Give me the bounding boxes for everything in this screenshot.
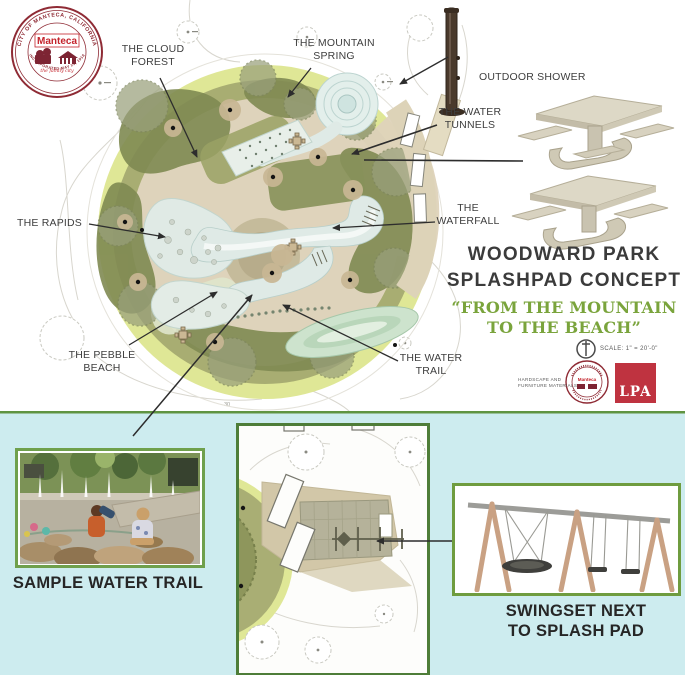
callout-water-tunnels: THE WATER TUNNELS [420,106,520,131]
seal-name: Manteca [37,36,77,47]
callout-cloud-forest-line1: THE CLOUD [103,43,203,56]
callout-waterfall: THE WATERFALL [418,202,518,227]
title-block: WOODWARD PARK SPLASHPAD CONCEPT “FROM TH… [440,242,685,338]
callout-rapids: THE RAPIDS [17,217,82,230]
seal-small-name: Manteca [578,377,597,382]
callout-mountain-spring-line2: SPRING [264,50,404,63]
materials-note: HARDSCAPE AND FURNITURE MATERIALS [518,377,577,389]
callout-rapids-line1: THE RAPIDS [17,217,82,230]
swingset-image [454,485,680,595]
sample-water-trail-caption: SAMPLE WATER TRAIL [10,573,206,593]
subtitle: “FROM THE MOUNTAIN TO THE BEACH” [440,298,685,338]
subtitle-line2: TO THE BEACH” [440,318,685,338]
callout-mountain-spring-line1: THE MOUNTAIN [264,37,404,50]
callout-waterfall-line2: WATERFALL [418,215,518,228]
scale-note: SCALE: 1" = 20'-0" [600,346,658,352]
picnic-table-images [512,96,674,249]
page-title-line1: WOODWARD PARK [440,242,685,268]
sample-photo [17,446,204,569]
seal-tagline: the family city [40,68,74,74]
swingset-caption-line2: TO SPLASH PAD [464,621,685,641]
callout-pebble-beach-line1: THE PEBBLE [52,349,152,362]
callout-water-tunnels-line1: THE WATER [420,106,520,119]
swingset-caption-line1: SWINGSET NEXT [464,601,685,621]
callout-pebble-beach: THE PEBBLE BEACH [52,349,152,374]
materials-note-line2: FURNITURE MATERIALS [518,383,577,389]
callout-outdoor-shower: OUTDOOR SHOWER [479,71,586,84]
concept-board: 30 [0,0,685,675]
lpa-logo-text: LPA [619,384,651,400]
callout-water-tunnels-line2: TUNNELS [420,119,520,132]
callout-outdoor-shower-line1: OUTDOOR SHOWER [479,71,586,84]
manteca-seal: CITY OF MANTECA, CALIFORNIA INCORPORATED… [12,7,102,97]
callout-pebble-beach-line2: BEACH [52,362,152,375]
callout-water-trail: THE WATER TRAIL [381,352,481,377]
sample-water-trail-caption-text: SAMPLE WATER TRAIL [10,573,206,593]
callout-cloud-forest-line2: FOREST [103,56,203,69]
subtitle-line1: “FROM THE MOUNTAIN [440,298,685,318]
callout-mountain-spring: THE MOUNTAIN SPRING [264,37,404,62]
callout-water-trail-line1: THE WATER [381,352,481,365]
callout-cloud-forest: THE CLOUD FOREST [103,43,203,68]
lpa-logo: LPA [615,363,656,403]
page-title-line2: SPLASHPAD CONCEPT [440,268,685,294]
callout-waterfall-line1: THE [418,202,518,215]
compass-icon [577,340,595,358]
callout-water-trail-line2: TRAIL [381,365,481,378]
swingset-caption: SWINGSET NEXT TO SPLASH PAD [464,601,685,641]
